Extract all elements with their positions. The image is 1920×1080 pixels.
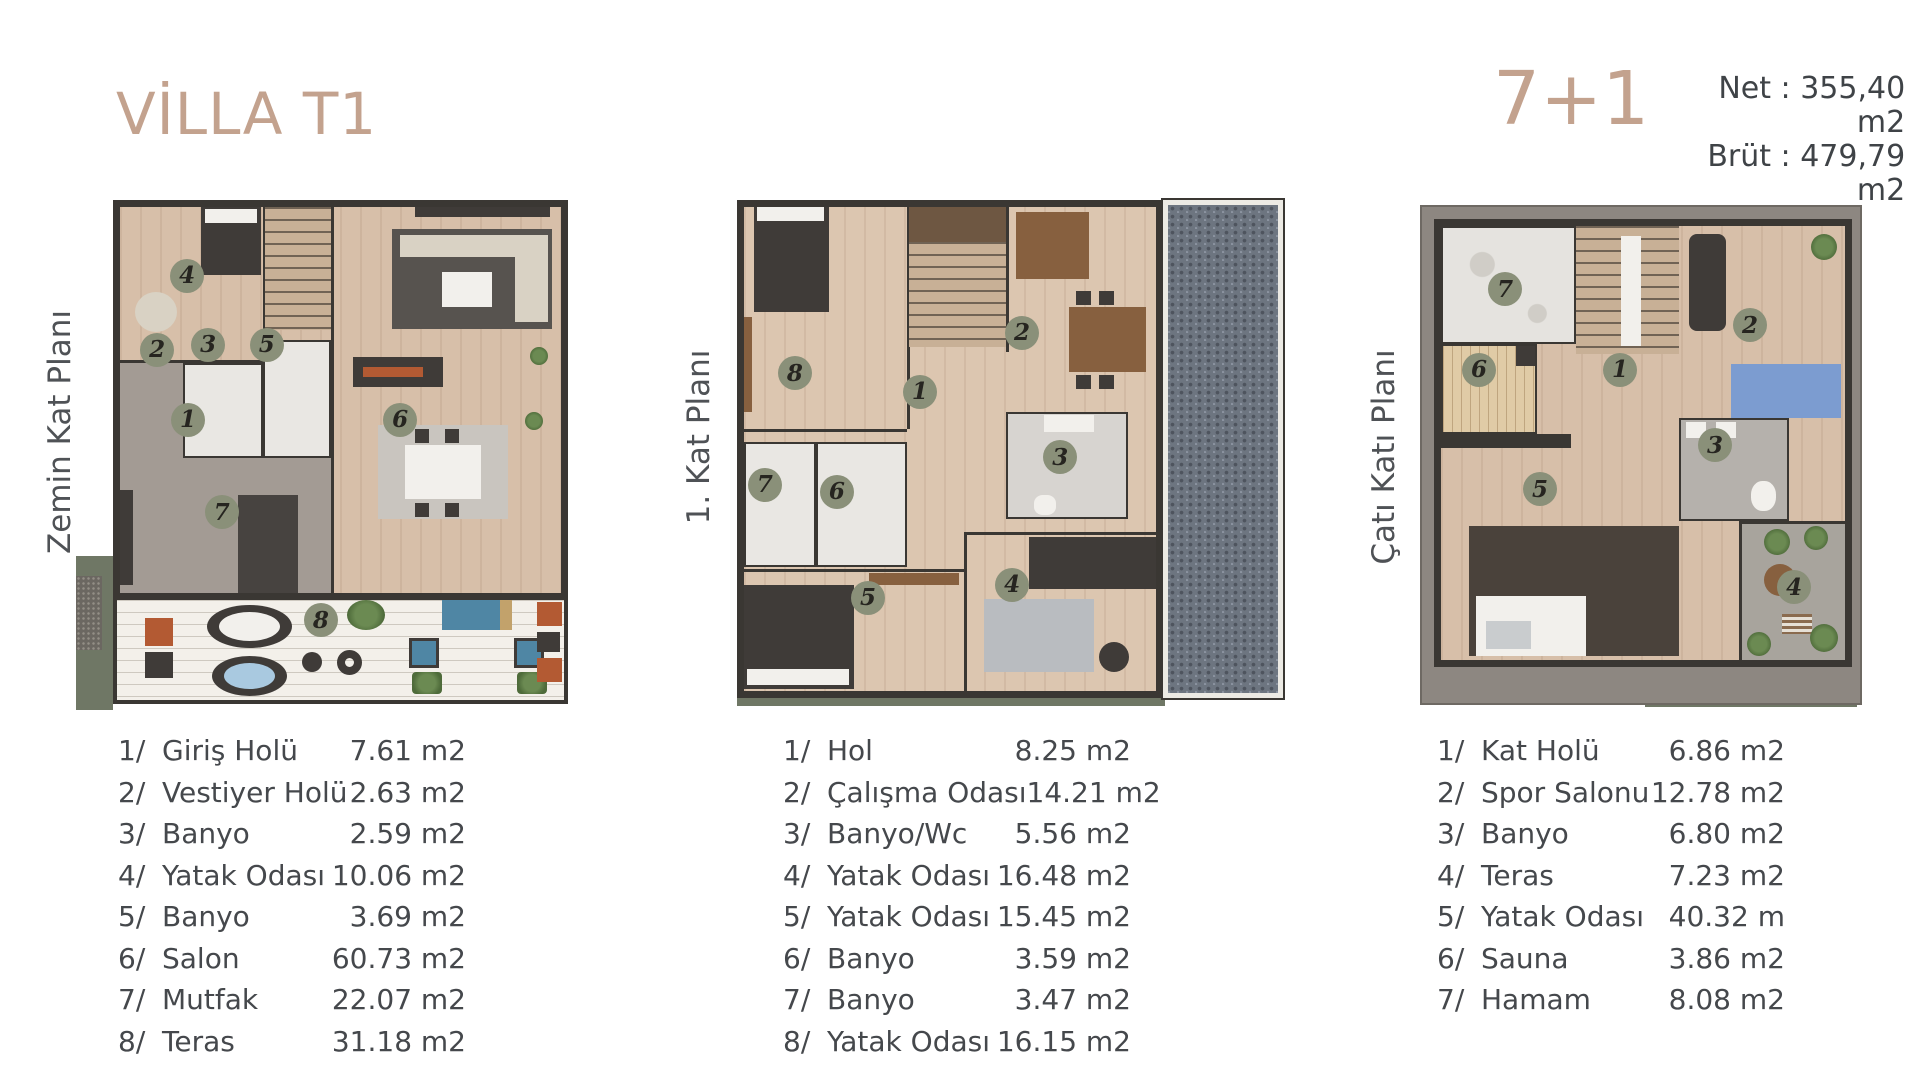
room-area: 12.78 m2	[1651, 776, 1785, 809]
floorplan-kat1: 82137654	[737, 200, 1283, 705]
room-number-badge: 7	[748, 468, 782, 502]
room-area: 3.86 m2	[1669, 942, 1785, 975]
room-number-badge: 1	[171, 403, 205, 437]
room-name: Banyo	[1481, 817, 1669, 850]
room-number-badge: 6	[1462, 353, 1496, 387]
room-name: Giriş Holü	[162, 734, 350, 767]
room-name: Spor Salonu	[1481, 776, 1651, 809]
room-area: 8.25 m2	[1015, 734, 1131, 767]
room-area: 22.07 m2	[332, 983, 466, 1016]
floor-label-kat1: 1. Kat Planı	[681, 350, 717, 525]
room-name: Banyo	[827, 983, 1015, 1016]
room-number-badge: 2	[1005, 316, 1039, 350]
room-area: 3.69 m2	[350, 900, 466, 933]
room-name: Banyo/Wc	[827, 817, 1015, 850]
room-row: 1/Hol8.25 m2	[783, 730, 1131, 772]
room-name: Sauna	[1481, 942, 1669, 975]
room-name: Çalışma Odası	[827, 776, 1027, 809]
room-name: Salon	[162, 942, 332, 975]
room-row: 4/Teras7.23 m2	[1437, 855, 1785, 897]
floor-label-cati: Çatı Katı Planı	[1366, 349, 1402, 564]
badge-layer: 82137654	[737, 200, 1283, 705]
room-number-badge: 4	[1777, 570, 1811, 604]
room-number: 5/	[783, 900, 827, 933]
room-row: 7/Banyo3.47 m2	[783, 979, 1131, 1021]
room-name: Yatak Odası	[827, 900, 997, 933]
room-name: Yatak Odası	[827, 859, 997, 892]
room-area: 15.45 m2	[997, 900, 1131, 933]
room-area: 6.80 m2	[1669, 817, 1785, 850]
room-row: 8/Teras31.18 m2	[118, 1021, 466, 1063]
room-name: Yatak Odası	[827, 1025, 997, 1058]
room-row: 5/Yatak Odası40.32 m	[1437, 896, 1785, 938]
room-number: 8/	[783, 1025, 827, 1058]
room-row: 4/Yatak Odası16.48 m2	[783, 855, 1131, 897]
badge-layer: 42351678	[113, 200, 568, 710]
room-name: Banyo	[162, 900, 350, 933]
room-name: Hamam	[1481, 983, 1669, 1016]
room-number: 1/	[118, 734, 162, 767]
room-list-kat1: 1/Hol8.25 m22/Çalışma Odası14.21 m23/Ban…	[783, 730, 1131, 1062]
room-row: 8/Yatak Odası16.15 m2	[783, 1021, 1131, 1063]
room-number-badge: 5	[250, 328, 284, 362]
room-area: 40.32 m	[1669, 900, 1785, 933]
room-name: Hol	[827, 734, 1015, 767]
room-number-badge: 8	[304, 603, 338, 637]
badge-layer: 7261354	[1422, 207, 1864, 707]
room-number-badge: 7	[1488, 272, 1522, 306]
room-number: 3/	[1437, 817, 1481, 850]
room-number-badge: 2	[1733, 308, 1767, 342]
room-row: 3/Banyo/Wc5.56 m2	[783, 813, 1131, 855]
room-number-badge: 4	[170, 259, 204, 293]
page-title: VİLLA T1	[116, 80, 377, 148]
room-number: 5/	[1437, 900, 1481, 933]
room-number: 6/	[783, 942, 827, 975]
area-stats: Net : 355,40 m2 Brüt : 479,79 m2	[1667, 72, 1905, 208]
room-area: 3.47 m2	[1015, 983, 1131, 1016]
room-row: 1/Giriş Holü7.61 m2	[118, 730, 466, 772]
room-number: 3/	[118, 817, 162, 850]
room-area: 7.61 m2	[350, 734, 466, 767]
room-number-badge: 6	[383, 403, 417, 437]
spec-block: 7+1 Net : 355,40 m2 Brüt : 479,79 m2	[1493, 62, 1905, 208]
room-area: 16.48 m2	[997, 859, 1131, 892]
room-name: Teras	[1481, 859, 1669, 892]
room-number: 2/	[118, 776, 162, 809]
room-row: 5/Yatak Odası15.45 m2	[783, 896, 1131, 938]
floorplan-zemin: 42351678	[113, 200, 568, 710]
room-number-badge: 5	[851, 581, 885, 615]
room-number-badge: 3	[1698, 428, 1732, 462]
room-row: 2/Çalışma Odası14.21 m2	[783, 772, 1131, 814]
room-number-badge: 7	[205, 495, 239, 529]
room-number: 4/	[118, 859, 162, 892]
room-number: 7/	[118, 983, 162, 1016]
room-number-badge: 1	[903, 375, 937, 409]
room-area: 14.21 m2	[1027, 776, 1161, 809]
room-number: 6/	[1437, 942, 1481, 975]
room-number: 6/	[118, 942, 162, 975]
room-number: 7/	[783, 983, 827, 1016]
room-area: 16.15 m2	[997, 1025, 1131, 1058]
room-number-badge: 4	[995, 568, 1029, 602]
room-area: 2.59 m2	[350, 817, 466, 850]
brut-area: Brüt : 479,79 m2	[1667, 140, 1905, 208]
room-row: 3/Banyo6.80 m2	[1437, 813, 1785, 855]
room-list-zemin: 1/Giriş Holü7.61 m22/Vestiyer Holü2.63 m…	[118, 730, 466, 1062]
room-area: 6.86 m2	[1669, 734, 1785, 767]
room-number: 1/	[1437, 734, 1481, 767]
room-name: Banyo	[827, 942, 1015, 975]
room-name: Teras	[162, 1025, 332, 1058]
room-name: Mutfak	[162, 983, 332, 1016]
floor-label-zemin: Zemin Kat Planı	[42, 310, 78, 554]
room-row: 2/Spor Salonu12.78 m2	[1437, 772, 1785, 814]
room-number-badge: 5	[1523, 472, 1557, 506]
room-number-badge: 3	[191, 328, 225, 362]
room-row: 5/Banyo3.69 m2	[118, 896, 466, 938]
floorplan-cati: 7261354	[1420, 205, 1862, 705]
room-name: Banyo	[162, 817, 350, 850]
room-area: 5.56 m2	[1015, 817, 1131, 850]
gravel-path	[76, 576, 102, 650]
room-row: 6/Banyo3.59 m2	[783, 938, 1131, 980]
room-row: 4/Yatak Odası10.06 m2	[118, 855, 466, 897]
room-row: 7/Mutfak22.07 m2	[118, 979, 466, 1021]
room-name: Vestiyer Holü	[162, 776, 350, 809]
room-row: 6/Salon60.73 m2	[118, 938, 466, 980]
room-name: Kat Holü	[1481, 734, 1669, 767]
room-number: 5/	[118, 900, 162, 933]
room-number: 3/	[783, 817, 827, 850]
room-row: 7/Hamam8.08 m2	[1437, 979, 1785, 1021]
room-row: 1/Kat Holü6.86 m2	[1437, 730, 1785, 772]
room-count: 7+1	[1493, 62, 1649, 136]
room-area: 3.59 m2	[1015, 942, 1131, 975]
room-name: Yatak Odası	[1481, 900, 1669, 933]
room-number: 4/	[1437, 859, 1481, 892]
room-area: 8.08 m2	[1669, 983, 1785, 1016]
room-area: 10.06 m2	[332, 859, 466, 892]
room-number: 1/	[783, 734, 827, 767]
room-number-badge: 2	[140, 333, 174, 367]
room-area: 2.63 m2	[350, 776, 466, 809]
room-area: 60.73 m2	[332, 942, 466, 975]
room-number-badge: 8	[778, 356, 812, 390]
room-row: 2/Vestiyer Holü2.63 m2	[118, 772, 466, 814]
room-number-badge: 3	[1043, 440, 1077, 474]
room-number: 8/	[118, 1025, 162, 1058]
room-area: 31.18 m2	[332, 1025, 466, 1058]
room-row: 3/Banyo2.59 m2	[118, 813, 466, 855]
room-number: 7/	[1437, 983, 1481, 1016]
villa-plan-sheet: { "header": { "title": "VİLLA T1", "type…	[0, 0, 1920, 1080]
room-list-cati: 1/Kat Holü6.86 m22/Spor Salonu12.78 m23/…	[1437, 730, 1785, 1021]
room-number: 2/	[1437, 776, 1481, 809]
room-row: 6/Sauna3.86 m2	[1437, 938, 1785, 980]
room-name: Yatak Odası	[162, 859, 332, 892]
room-number-badge: 6	[820, 475, 854, 509]
room-number: 4/	[783, 859, 827, 892]
net-area: Net : 355,40 m2	[1667, 72, 1905, 140]
room-number-badge: 1	[1603, 353, 1637, 387]
room-number: 2/	[783, 776, 827, 809]
room-area: 7.23 m2	[1669, 859, 1785, 892]
